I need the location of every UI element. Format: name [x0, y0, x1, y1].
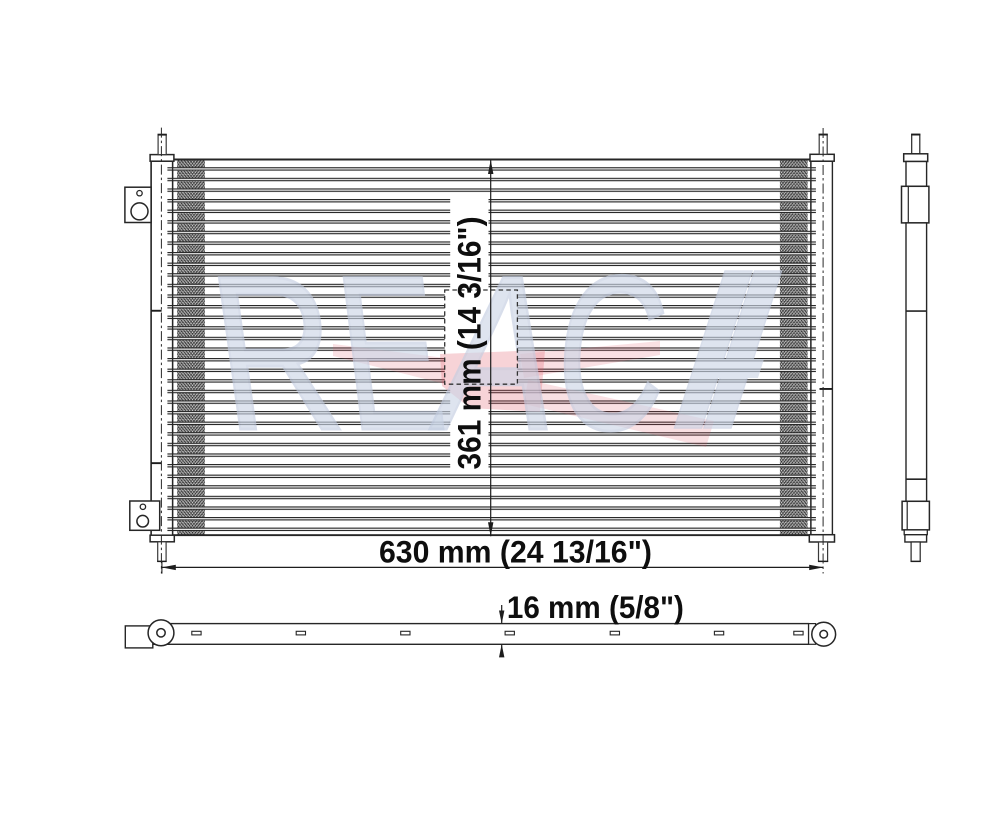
svg-text:630 mm (24 13/16"): 630 mm (24 13/16") — [379, 534, 652, 570]
svg-text:C: C — [549, 231, 676, 476]
svg-text:361 mm (14 3/16"): 361 mm (14 3/16") — [452, 217, 488, 470]
svg-text:16 mm (5/8"): 16 mm (5/8") — [507, 589, 684, 625]
